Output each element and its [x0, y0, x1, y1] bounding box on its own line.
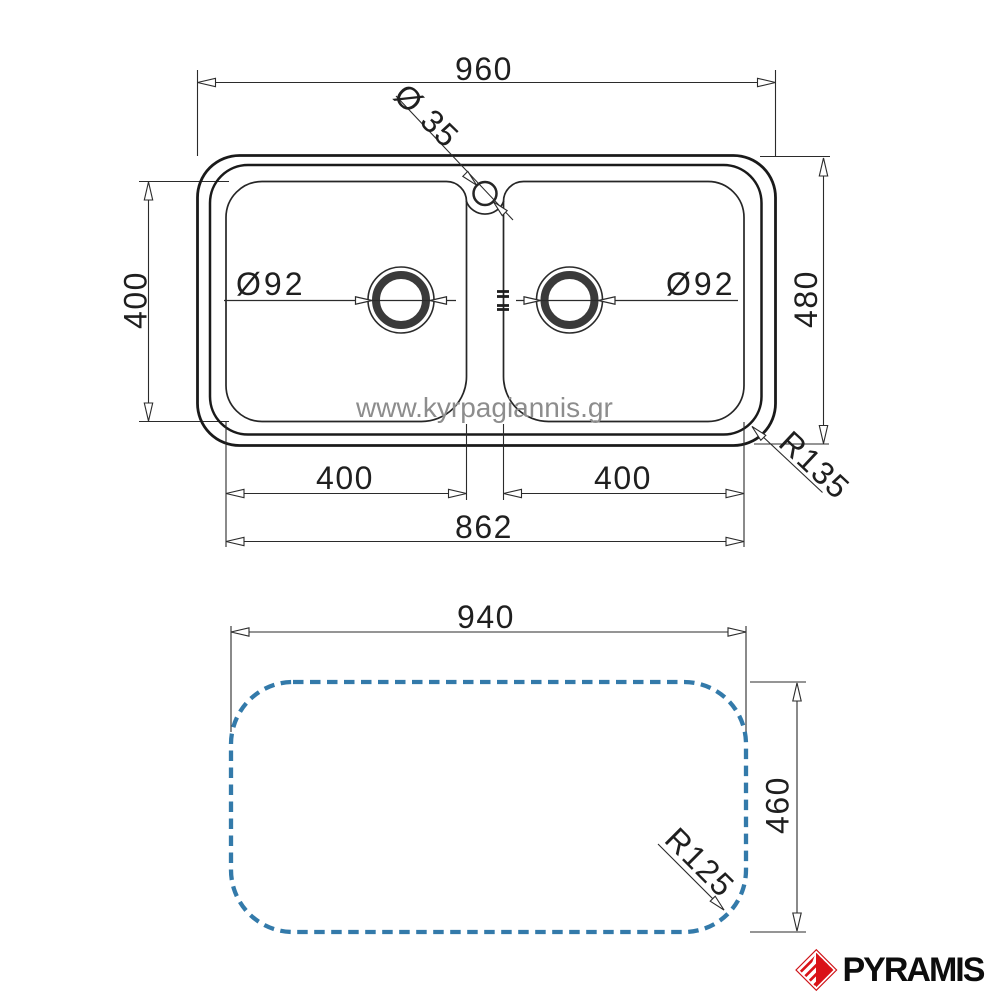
svg-text:862: 862	[455, 509, 513, 545]
svg-text:940: 940	[457, 599, 515, 635]
svg-text:PYRAMIS: PYRAMIS	[843, 951, 985, 989]
svg-text:400: 400	[594, 460, 652, 496]
svg-text:400: 400	[316, 460, 374, 496]
svg-text:960: 960	[455, 51, 513, 87]
svg-text:480: 480	[788, 270, 824, 328]
svg-text:Ø92: Ø92	[236, 266, 305, 302]
svg-text:460: 460	[760, 776, 796, 834]
svg-text:www.kyrpagiannis.gr: www.kyrpagiannis.gr	[355, 392, 613, 423]
svg-text:Ø92: Ø92	[666, 266, 735, 302]
svg-text:400: 400	[118, 271, 154, 329]
